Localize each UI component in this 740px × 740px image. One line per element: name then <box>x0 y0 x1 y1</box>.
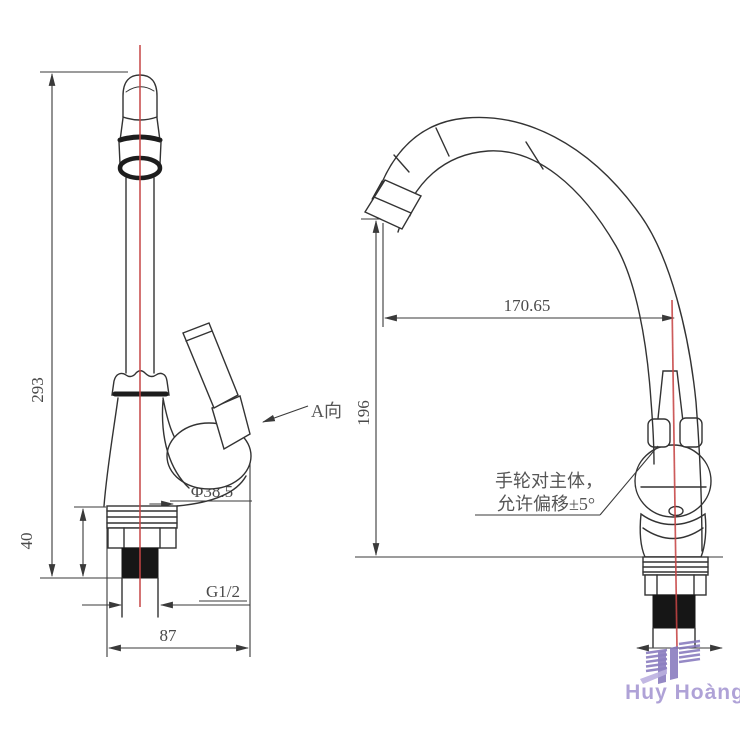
thread-size-label: G1/2 <box>206 582 240 601</box>
handle-lever <box>183 323 238 408</box>
front-view: 293 40 Φ38.5 G1/2 87 <box>17 45 342 657</box>
brand-name: Huy Hoàng <box>625 681 740 704</box>
watermark-logo: Huy Hoàng <box>625 641 740 704</box>
dim-shank-height-label: 40 <box>17 533 36 550</box>
threaded-shank-side <box>653 595 695 628</box>
note-line-2: 允许偏移±5° <box>497 494 595 514</box>
tolerance-note: 手轮对主体， 允许偏移±5° <box>475 446 658 515</box>
dim-spout-height-label: 196 <box>354 400 373 426</box>
view-a-callout: A向 <box>263 401 342 422</box>
faucet-technical-drawing: 293 40 Φ38.5 G1/2 87 <box>0 0 740 740</box>
note-line-1: 手轮对主体， <box>495 471 603 491</box>
dim-total-height-label: 293 <box>28 377 47 403</box>
side-view-faucet <box>365 117 722 649</box>
dim-depth-label: 87 <box>160 626 178 645</box>
side-view: 196 170.65 <box>354 117 723 649</box>
drawing-canvas: 293 40 Φ38.5 G1/2 87 <box>0 0 740 740</box>
front-view-faucet <box>104 45 251 617</box>
dim-spout-reach-label: 170.65 <box>504 296 551 315</box>
view-a-label: A向 <box>311 401 342 421</box>
